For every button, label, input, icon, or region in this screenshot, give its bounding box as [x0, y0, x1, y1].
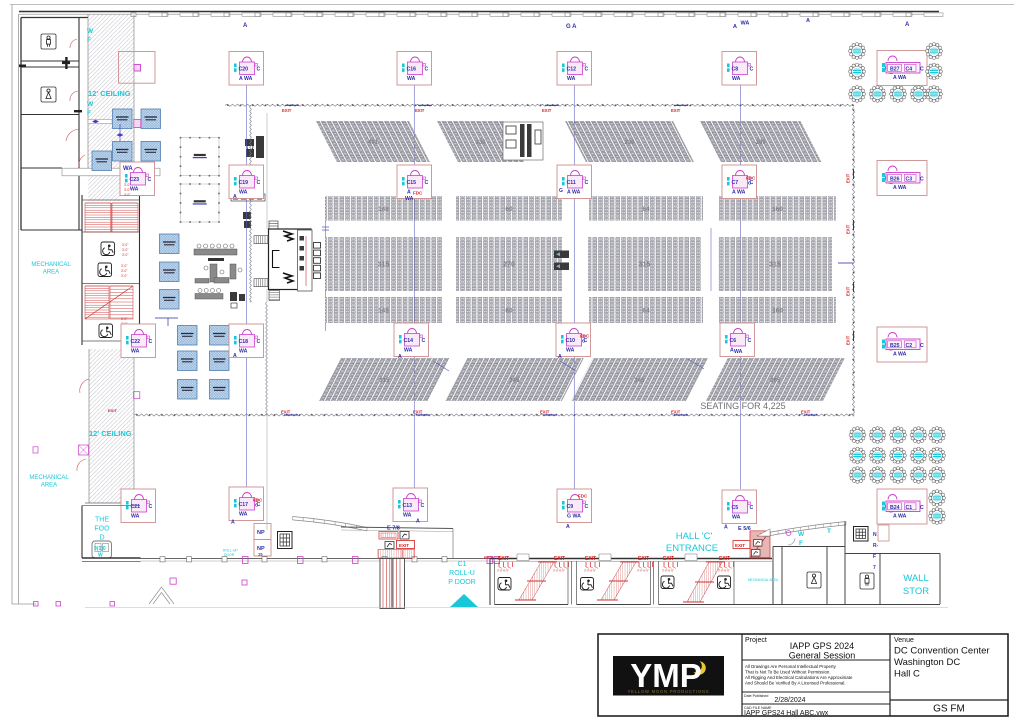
svg-text:3'-0"-6'-0": 3'-0"-6'-0"	[662, 569, 674, 573]
svg-text:C16: C16	[407, 67, 417, 73]
svg-text:64: 64	[642, 206, 650, 213]
svg-text:That Is Not To Be Used Without: That Is Not To Be Used Without Permissio…	[745, 670, 831, 675]
svg-text:WA: WA	[732, 76, 741, 82]
svg-text:A WA: A WA	[567, 190, 581, 196]
svg-text:T: T	[827, 528, 831, 535]
svg-text:EXIT: EXIT	[846, 173, 851, 183]
svg-text:C: C	[750, 67, 754, 73]
svg-text:WA: WA	[407, 76, 416, 82]
svg-text:C8: C8	[732, 67, 739, 73]
svg-text:EXIT: EXIT	[671, 108, 681, 113]
svg-text:A WA: A WA	[893, 352, 907, 358]
svg-text:W: W	[798, 531, 805, 538]
svg-text:C: C	[750, 505, 754, 511]
svg-text:A WA: A WA	[893, 185, 907, 191]
svg-text:3'-0": 3'-0"	[121, 269, 127, 273]
svg-text:C3: C3	[906, 177, 913, 183]
svg-text:B25: B25	[890, 343, 900, 349]
svg-text:Project: Project	[745, 637, 767, 644]
svg-text:9(1)0: 9(1)0	[94, 546, 106, 552]
svg-text:General Session: General Session	[789, 651, 856, 661]
svg-text:B26: B26	[890, 177, 900, 183]
svg-text:D: D	[99, 535, 104, 542]
svg-text:C19: C19	[239, 180, 249, 186]
svg-text:C: C	[257, 339, 261, 345]
svg-text:7: 7	[873, 565, 876, 571]
svg-text:C: C	[149, 504, 153, 510]
svg-text:C4: C4	[906, 67, 913, 73]
svg-text:WA: WA	[403, 513, 412, 519]
svg-text:WA: WA	[131, 514, 140, 520]
svg-text:WA: WA	[123, 166, 133, 172]
svg-text:A WA: A WA	[239, 76, 253, 82]
svg-text:C: C	[149, 339, 153, 345]
svg-text:WA: WA	[404, 348, 413, 354]
svg-text:EXIT: EXIT	[846, 335, 851, 345]
svg-text:EXIT: EXIT	[415, 108, 425, 113]
svg-text:265: 265	[770, 378, 781, 384]
svg-text:WA: WA	[741, 21, 750, 27]
svg-text:IAPP GPS24 Hall ABC.vwx: IAPP GPS24 Hall ABC.vwx	[744, 710, 829, 717]
svg-text:Venue: Venue	[894, 637, 914, 644]
svg-text:12' CEILING: 12' CEILING	[88, 89, 131, 98]
svg-text:IAPP GPS 2024: IAPP GPS 2024	[790, 641, 854, 651]
svg-text:C: C	[585, 180, 589, 186]
svg-text:C6: C6	[730, 338, 737, 344]
svg-text:3'-0"-6'-0": 3'-0"-6'-0"	[637, 569, 649, 573]
svg-text:YELLOW MOON PRODUCTIONS: YELLOW MOON PRODUCTIONS	[628, 689, 710, 694]
svg-text:C: C	[920, 67, 924, 73]
svg-text:C18: C18	[239, 339, 249, 345]
svg-text:C: C	[257, 180, 261, 186]
svg-text:C20: C20	[239, 67, 249, 73]
svg-text:C1: C1	[458, 561, 467, 568]
svg-text:NP: NP	[257, 530, 265, 536]
svg-text:DOOR: DOOR	[224, 553, 235, 557]
svg-text:A: A	[733, 24, 737, 30]
svg-text:3'-0": 3'-0"	[122, 253, 128, 257]
svg-text:C5: C5	[732, 505, 739, 511]
svg-text:A: A	[566, 524, 570, 530]
svg-text:EXIT: EXIT	[846, 224, 851, 234]
svg-text:C21: C21	[131, 504, 141, 510]
svg-text:160: 160	[772, 308, 783, 315]
svg-text:F: F	[799, 540, 803, 547]
svg-text:148: 148	[378, 206, 389, 213]
svg-text:E 7/8: E 7/8	[387, 526, 400, 532]
svg-text:A WA: A WA	[732, 190, 746, 196]
svg-text:64: 64	[642, 308, 650, 315]
svg-text:EXIT: EXIT	[671, 410, 681, 415]
svg-text:All Rigging And Electrical Cal: All Rigging And Electrical Calculations …	[745, 675, 853, 680]
svg-text:C: C	[585, 67, 589, 73]
svg-text:EXIT: EXIT	[281, 410, 291, 415]
svg-text:A: A	[416, 519, 420, 525]
svg-text:C: C	[257, 67, 261, 73]
svg-text:C: C	[422, 338, 426, 344]
svg-text:EXIT: EXIT	[801, 410, 811, 415]
svg-text:3'-0"-6'-0": 3'-0"-6'-0"	[718, 569, 730, 573]
svg-text:3'-0"-6'-0": 3'-0"-6'-0"	[584, 569, 596, 573]
svg-text:A: A	[243, 23, 248, 29]
svg-text:A WA: A WA	[893, 75, 907, 81]
svg-text:C: C	[920, 177, 924, 183]
svg-text:F: F	[87, 37, 91, 44]
svg-text:W: W	[87, 28, 94, 35]
svg-text:3'-0": 3'-0"	[124, 193, 130, 197]
svg-text:A: A	[724, 525, 728, 531]
svg-text:F: F	[87, 110, 91, 117]
svg-text:345: 345	[634, 378, 645, 384]
svg-text:C22: C22	[131, 339, 141, 345]
svg-text:C: C	[585, 504, 589, 510]
svg-text:60: 60	[505, 206, 513, 213]
svg-text:C15: C15	[407, 180, 417, 186]
svg-text:MECHANICAL: MECHANICAL	[29, 475, 69, 481]
svg-text:C: C	[425, 180, 429, 186]
svg-text:315: 315	[378, 262, 390, 269]
svg-text:C: C	[920, 505, 924, 511]
svg-text:WALL: WALL	[903, 573, 929, 584]
svg-text:C14: C14	[404, 338, 414, 344]
svg-text:200: 200	[756, 140, 767, 146]
svg-text:C: C	[748, 338, 752, 344]
svg-text:C17: C17	[239, 502, 249, 508]
svg-text:MECHANICAL AREA: MECHANICAL AREA	[748, 578, 779, 582]
svg-text:WA: WA	[732, 515, 741, 521]
svg-text:WA: WA	[239, 512, 248, 518]
svg-text:C1: C1	[906, 505, 913, 511]
svg-text:B27: B27	[890, 67, 900, 73]
svg-text:W: W	[87, 101, 94, 108]
svg-text:C: C	[148, 177, 152, 183]
svg-text:19: 19	[258, 552, 263, 557]
svg-text:EXIT: EXIT	[638, 556, 649, 562]
svg-text:A: A	[398, 354, 402, 360]
svg-text:130: 130	[475, 140, 486, 146]
svg-text:C9: C9	[567, 504, 574, 510]
svg-text:C: C	[421, 503, 425, 509]
svg-text:ENTRANCE: ENTRANCE	[666, 543, 718, 554]
svg-text:A: A	[233, 353, 237, 359]
svg-text:148: 148	[378, 308, 389, 315]
svg-text:WA: WA	[567, 76, 576, 82]
svg-text:EXIT: EXIT	[498, 556, 509, 562]
svg-text:160: 160	[772, 206, 783, 213]
svg-text:3'-0": 3'-0"	[121, 274, 127, 278]
svg-text:EXIT: EXIT	[554, 556, 565, 562]
svg-text:FOO: FOO	[94, 526, 110, 533]
svg-text:C: C	[425, 67, 429, 73]
svg-text:G: G	[559, 188, 563, 194]
svg-text:Date Published: Date Published	[744, 694, 768, 698]
svg-text:AREA: AREA	[41, 483, 57, 489]
svg-text:P DOOR: P DOOR	[448, 579, 476, 586]
svg-text:3'-0": 3'-0"	[121, 317, 127, 321]
svg-text:60: 60	[505, 308, 513, 315]
svg-text:E 5/6: E 5/6	[738, 526, 751, 532]
svg-text:WA: WA	[734, 349, 743, 355]
svg-text:R-: R-	[873, 543, 879, 549]
svg-text:A: A	[905, 22, 910, 28]
svg-text:EXIT: EXIT	[663, 556, 674, 562]
svg-text:C12: C12	[567, 67, 577, 73]
svg-text:315: 315	[769, 262, 781, 269]
svg-text:STOR: STOR	[903, 586, 929, 597]
svg-text:2/28/2024: 2/28/2024	[774, 697, 805, 704]
svg-text:Hall C: Hall C	[894, 669, 920, 680]
svg-text:3'-0": 3'-0"	[124, 188, 130, 192]
svg-text:Washington DC: Washington DC	[894, 657, 960, 668]
svg-text:WA: WA	[131, 349, 140, 355]
svg-text:EXIT: EXIT	[585, 556, 596, 562]
svg-text:WA: WA	[130, 187, 139, 193]
svg-text:3'-0": 3'-0"	[124, 183, 130, 187]
svg-text:A: A	[233, 194, 237, 200]
svg-text:A: A	[558, 354, 562, 360]
svg-text:THE: THE	[95, 517, 109, 524]
svg-text:N: N	[873, 532, 877, 538]
svg-text:EXIT: EXIT	[735, 543, 745, 548]
svg-text:C13: C13	[403, 503, 413, 509]
svg-text:ROLL-U: ROLL-U	[449, 570, 475, 577]
svg-text:270: 270	[503, 262, 515, 269]
svg-text:12' CEILING: 12' CEILING	[89, 429, 132, 438]
svg-text:345: 345	[509, 378, 520, 384]
svg-text:EXIT: EXIT	[108, 408, 117, 413]
svg-text:B24: B24	[890, 505, 900, 511]
svg-text:C2: C2	[906, 343, 913, 349]
svg-text:EXIT: EXIT	[399, 543, 409, 548]
svg-text:3'-0": 3'-0"	[121, 264, 127, 268]
svg-text:3'-0": 3'-0"	[122, 243, 128, 247]
svg-text:C11: C11	[567, 180, 576, 186]
svg-text:C7: C7	[732, 180, 739, 186]
svg-text:3'-0"-6'-0": 3'-0"-6'-0"	[553, 569, 565, 573]
svg-text:315: 315	[379, 378, 390, 384]
svg-text:C10: C10	[566, 338, 576, 344]
svg-text:A: A	[407, 190, 411, 196]
svg-text:EXIT: EXIT	[282, 108, 292, 113]
svg-text:HALL 'C': HALL 'C'	[676, 531, 713, 542]
svg-text:3'-0"-6'-0": 3'-0"-6'-0"	[497, 569, 509, 573]
svg-text:AREA: AREA	[43, 270, 59, 276]
svg-text:FDC: FDC	[413, 191, 423, 196]
svg-text:G A: G A	[566, 24, 577, 30]
svg-text:EXIT: EXIT	[540, 410, 550, 415]
svg-text:DC Convention Center: DC Convention Center	[894, 646, 990, 657]
svg-text:SEATING FOR 4,225: SEATING FOR 4,225	[700, 401, 785, 411]
svg-text:All Drawings Are Personal Inte: All Drawings Are Personal Intellectual P…	[745, 664, 837, 669]
svg-text:And Should Be Verified By A Li: And Should Be Verified By A Licensed Pro…	[745, 681, 846, 686]
svg-text:F: F	[873, 554, 876, 560]
svg-text:EXIT: EXIT	[484, 555, 493, 560]
svg-text:G WA: G WA	[567, 514, 581, 520]
svg-text:401: 401	[368, 140, 379, 146]
svg-text:EXIT: EXIT	[846, 286, 851, 296]
svg-text:3'-0": 3'-0"	[122, 248, 128, 252]
svg-text:FDC: FDC	[578, 494, 588, 499]
svg-text:WA: WA	[405, 196, 414, 202]
svg-text:A WA: A WA	[893, 514, 907, 520]
svg-text:WA: WA	[239, 349, 248, 355]
svg-text:C: C	[920, 343, 924, 349]
svg-text:WA: WA	[239, 190, 248, 196]
svg-text:C23: C23	[130, 177, 140, 183]
svg-text:GS FM: GS FM	[933, 704, 965, 715]
svg-text:EXIT: EXIT	[542, 108, 552, 113]
svg-text:WA: WA	[566, 348, 575, 354]
svg-text:A: A	[806, 18, 810, 24]
svg-text:EXIT: EXIT	[719, 556, 730, 562]
svg-text:230: 230	[624, 140, 635, 146]
svg-text:315: 315	[639, 262, 651, 269]
svg-text:MECHANICAL: MECHANICAL	[31, 262, 71, 268]
svg-text:A: A	[231, 520, 235, 526]
svg-text:ROLL-UP: ROLL-UP	[223, 549, 238, 553]
